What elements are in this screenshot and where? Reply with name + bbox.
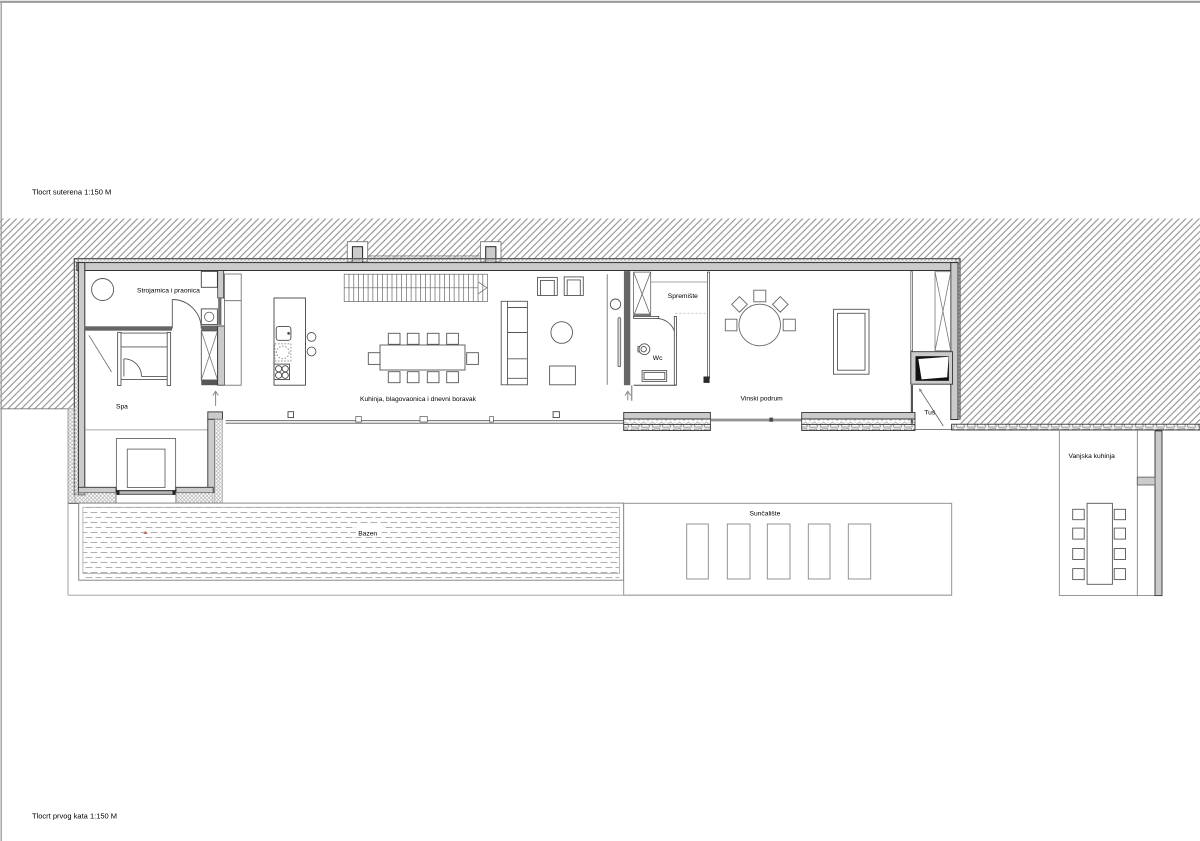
- svg-text:Spa: Spa: [116, 404, 128, 411]
- svg-text:Tlocrt prvog kata 1:150 M: Tlocrt prvog kata 1:150 M: [32, 812, 117, 821]
- svg-text:Bazen: Bazen: [358, 530, 377, 537]
- svg-text:Strojarnica i praonica: Strojarnica i praonica: [137, 287, 200, 294]
- svg-text:Sunčalište: Sunčalište: [750, 510, 781, 517]
- svg-text:Vanjska kuhinja: Vanjska kuhinja: [1069, 453, 1116, 460]
- svg-text:Wc: Wc: [653, 355, 663, 362]
- svg-text:Kuhinja, blagovaonica i dnevni: Kuhinja, blagovaonica i dnevni boravak: [360, 396, 477, 403]
- svg-text:Tlocrt suterena 1:150 M: Tlocrt suterena 1:150 M: [32, 188, 111, 197]
- svg-text:Spremište: Spremište: [668, 293, 698, 300]
- svg-text:Vinski podrum: Vinski podrum: [741, 396, 784, 403]
- svg-text:Tuš: Tuš: [924, 410, 936, 417]
